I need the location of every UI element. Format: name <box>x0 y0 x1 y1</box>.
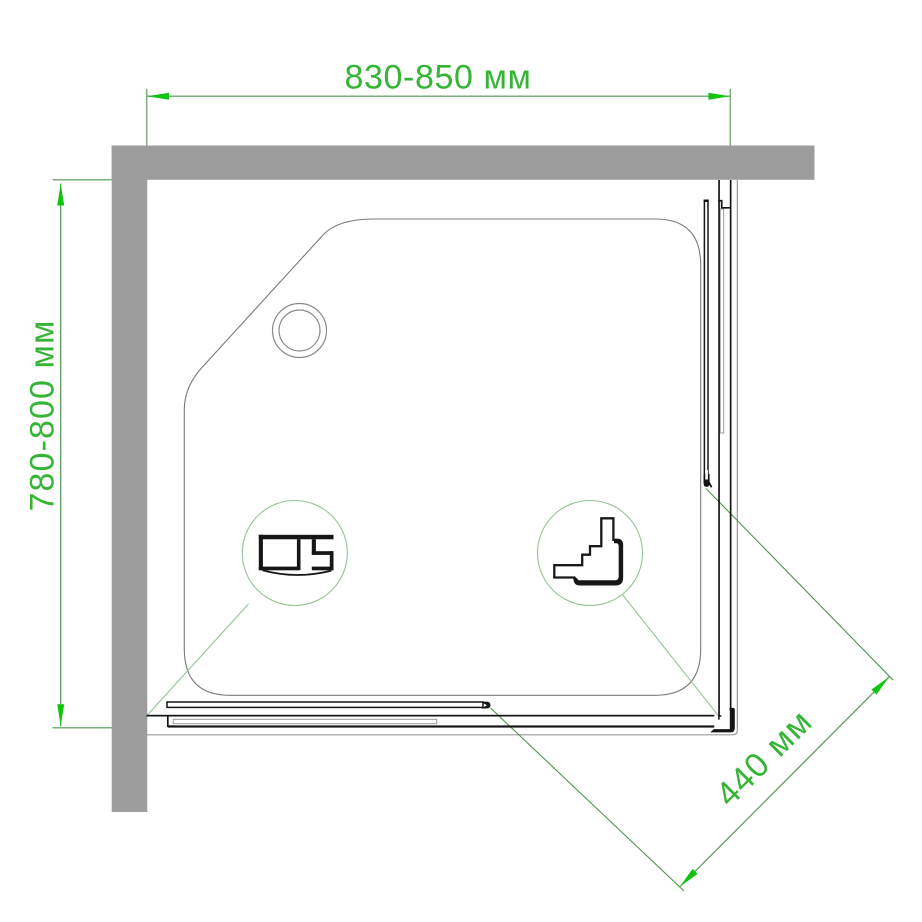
svg-text:780-800 мм: 780-800 мм <box>23 320 61 512</box>
svg-text:830-850 мм: 830-850 мм <box>345 59 532 97</box>
